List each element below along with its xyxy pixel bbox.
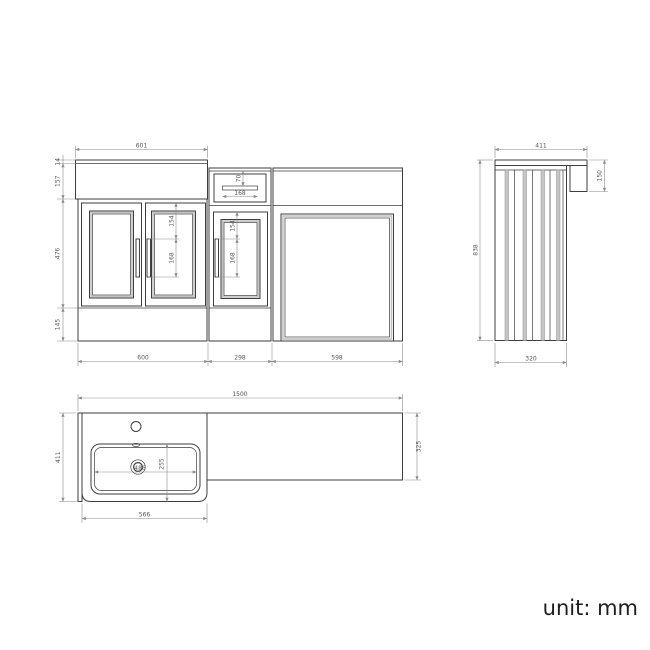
front-right-unit	[273, 168, 403, 341]
plan-right-section	[207, 413, 403, 480]
plan-view: 1500 411 325 486 255 566	[55, 391, 423, 523]
groove-stripe	[541, 170, 545, 341]
left-door-2	[146, 203, 206, 306]
dim-label-left-section-depth: 411	[55, 451, 62, 463]
technical-drawing: 601 14 157 476 145 154 168 70	[0, 0, 650, 650]
front-view: 601 14 157 476 145 154 168 70	[55, 143, 403, 367]
dim-label-overall-height: 838	[473, 244, 480, 256]
dim-label-left-handle-offset: 154	[169, 215, 176, 227]
dim-label-left-unit-width: 600	[137, 355, 149, 362]
dim-label-worktop-width: 601	[136, 143, 148, 150]
dim-label-worktop-return: 150	[597, 170, 604, 182]
side-worktop	[495, 160, 587, 166]
side-view: 411 150 838 320	[473, 143, 609, 368]
dim-label-left-handle-length: 168	[169, 252, 176, 264]
left-carcass	[78, 199, 207, 341]
dim-label-worktop-edge: 14	[55, 158, 62, 166]
front-left-unit	[78, 199, 207, 341]
plan-left-end-strip	[78, 413, 82, 502]
dim-label-right-unit-width: 598	[331, 355, 343, 362]
unit-label: unit: mm	[543, 596, 638, 620]
dim-label-basin-section-width: 566	[139, 512, 151, 519]
left-door-handle-1	[136, 239, 140, 277]
dim-label-bowl-depth: 255	[159, 458, 166, 470]
right-carcass	[273, 168, 403, 341]
right-panel-inner	[285, 218, 390, 337]
plan-dimensions: 1500 411 325 486 255 566	[55, 391, 423, 523]
dim-label-drawer-height: 70	[236, 175, 243, 183]
dim-label-mid-handle-length: 168	[230, 252, 237, 264]
door-frame-inner	[93, 214, 131, 295]
right-panel-bevel	[283, 216, 392, 339]
side-dimensions: 411 150 838 320	[473, 143, 609, 368]
middle-door	[214, 212, 268, 306]
dim-label-drawer-width: 168	[234, 190, 246, 197]
dim-label-bowl-width: 486	[134, 465, 146, 472]
left-door-1	[82, 203, 142, 306]
front-dimensions: 601 14 157 476 145 154 168 70	[55, 143, 403, 367]
dim-label-cabinet-depth: 320	[525, 356, 537, 363]
right-panel-outer	[281, 214, 394, 341]
dim-label-worktop-length: 1500	[232, 391, 247, 398]
dim-label-door-height: 476	[55, 248, 62, 260]
tap-hole	[131, 422, 141, 432]
plan-basin-section	[82, 413, 207, 502]
worktop-slab	[76, 160, 208, 199]
door-frame-bevel	[223, 221, 259, 297]
groove-stripe	[523, 170, 527, 341]
dim-label-plinth-height: 145	[55, 319, 62, 331]
side-worktop-return	[570, 166, 587, 192]
door-frame-bevel	[91, 213, 132, 297]
dim-label-mid-unit-width: 298	[234, 355, 246, 362]
dim-label-worktop-depth: 411	[535, 143, 547, 150]
groove-stripe	[505, 170, 509, 341]
front-worktop	[76, 160, 208, 199]
dim-label-basin-height: 157	[55, 175, 62, 187]
dim-label-right-section-depth: 325	[416, 441, 423, 453]
side-panel-grooves	[505, 170, 563, 341]
left-door-handle-2	[147, 239, 151, 277]
groove-stripe	[557, 170, 561, 341]
dim-label-mid-handle-offset: 154	[230, 220, 237, 232]
middle-door-handle	[215, 239, 219, 277]
door-frame-outer	[221, 220, 260, 299]
door-frame-outer	[90, 211, 134, 298]
door-outline	[214, 212, 268, 306]
